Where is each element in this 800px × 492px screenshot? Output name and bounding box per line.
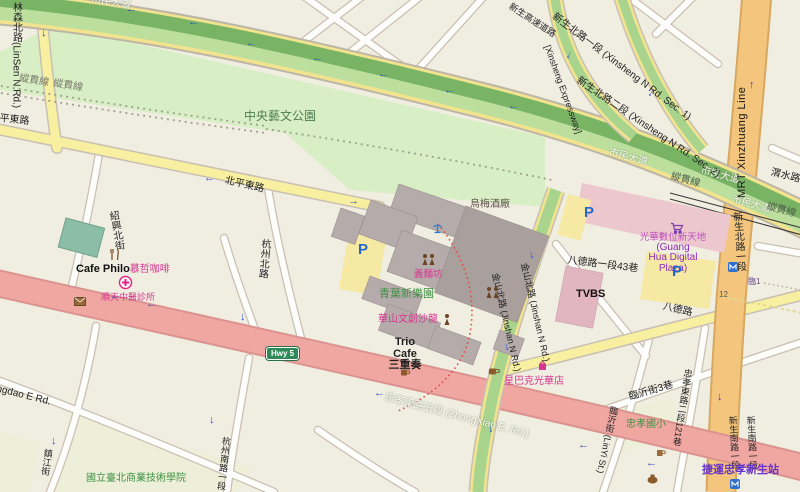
direction-arrow-icon: ←	[204, 173, 215, 184]
statues-icon-2[interactable]	[485, 286, 500, 299]
poi-cafe-philo-en: Cafe Philo	[76, 263, 130, 275]
direction-arrow-icon: ↓	[41, 28, 47, 39]
coffee-cup-icon-trio[interactable]	[400, 368, 411, 377]
direction-arrow-icon: ←	[146, 299, 157, 310]
metro-icon-station[interactable]	[730, 479, 740, 489]
poi-mrt-station: 捷運忠孝新生站	[702, 465, 779, 477]
poi-cafe-philo: Cafe Philo慕哲咖啡	[76, 264, 170, 276]
parking-icon-guanghua-west[interactable]: P	[584, 205, 594, 220]
direction-arrow-icon: ←	[374, 388, 385, 399]
parking-icon-huashan[interactable]: P	[358, 242, 368, 257]
shopping-cart-icon[interactable]	[670, 222, 684, 234]
road-label-linsen: 林森北路(LinSen N Rd.)	[10, 2, 21, 127]
direction-arrow-icon: ←	[646, 458, 657, 469]
direction-arrow-icon: →	[348, 196, 359, 207]
statues-icon-1[interactable]	[421, 253, 436, 266]
road-label-mrt-line: MRT Xinzhuang Line	[737, 87, 749, 198]
road-label-hangzhou-n: 杭州北路	[256, 238, 270, 279]
poi-cafe-philo-cjk: 慕哲咖啡	[130, 264, 170, 275]
poi-qingye: 青葉新樂園	[379, 289, 434, 301]
direction-arrow-icon: ←	[110, 291, 121, 302]
lane-dotted-lin1	[764, 283, 800, 291]
poi-zhongxiao-elementary: 忠孝國小	[626, 420, 666, 431]
direction-arrow-icon: ←	[312, 53, 323, 64]
road-label-xinsheng-s1-a: 新生南路一段	[727, 416, 739, 470]
road-label-lane-lin1: 臨1	[748, 278, 760, 286]
fountain-icon[interactable]	[431, 223, 444, 235]
direction-arrow-icon: ↓	[209, 415, 215, 426]
post-office-icon[interactable]	[74, 297, 86, 306]
mug-icon[interactable]	[656, 448, 666, 457]
shopping-bag-icon[interactable]	[537, 359, 548, 371]
park-label: 中央藝文公園	[244, 110, 316, 123]
poi-yimianfang: 義麵坊	[414, 270, 443, 280]
hwy5-shield: Hwy 5	[266, 347, 299, 360]
campus-area-west	[0, 430, 40, 492]
poi-trio-line1: Trio	[383, 337, 427, 349]
poi-umay-winery: 烏梅酒廠	[470, 200, 510, 211]
hospital-icon[interactable]	[118, 275, 133, 290]
poi-huashan-salon: 華山文創沙龍	[378, 315, 438, 326]
direction-arrow-icon: ←	[246, 38, 257, 49]
direction-arrow-icon: ↓	[240, 312, 246, 323]
direction-arrow-icon: ↓	[717, 392, 723, 403]
direction-arrow-icon: ↓	[51, 436, 57, 447]
road-label-lane-12: 12	[719, 291, 728, 299]
metro-icon-xinsheng[interactable]	[728, 262, 738, 272]
map-viewport[interactable]: 林森北路(LinSen N Rd.) 市民大道 縱貫線 縱貫線 北平東路 北平東…	[0, 0, 800, 492]
parking-icon-guanghua[interactable]: P	[672, 264, 682, 279]
statue-icon[interactable]	[443, 313, 451, 326]
poi-trio-cafe: Trio Cafe 三重奏	[383, 337, 427, 372]
poi-tvbs: TVBS	[576, 289, 605, 301]
direction-arrow-icon: ←	[578, 440, 589, 451]
direction-arrow-icon: ←	[444, 85, 455, 96]
direction-arrow-icon: ←	[508, 101, 519, 112]
direction-arrow-icon: ←	[378, 69, 389, 80]
pot-icon[interactable]	[646, 473, 659, 484]
restaurant-icon[interactable]	[108, 248, 120, 261]
road-label-xinsheng-s1-b: 新生南路一段	[745, 416, 757, 470]
poi-ntub: 國立臺北商業技術學院	[86, 474, 186, 485]
direction-arrow-icon: ←	[126, 4, 137, 15]
coffee-cup-icon-starbucks[interactable]	[488, 366, 500, 376]
direction-arrow-icon: ←	[188, 17, 199, 28]
poi-starbucks: 星巴克光華店	[504, 377, 564, 388]
direction-arrow-icon: ↑	[749, 80, 755, 91]
